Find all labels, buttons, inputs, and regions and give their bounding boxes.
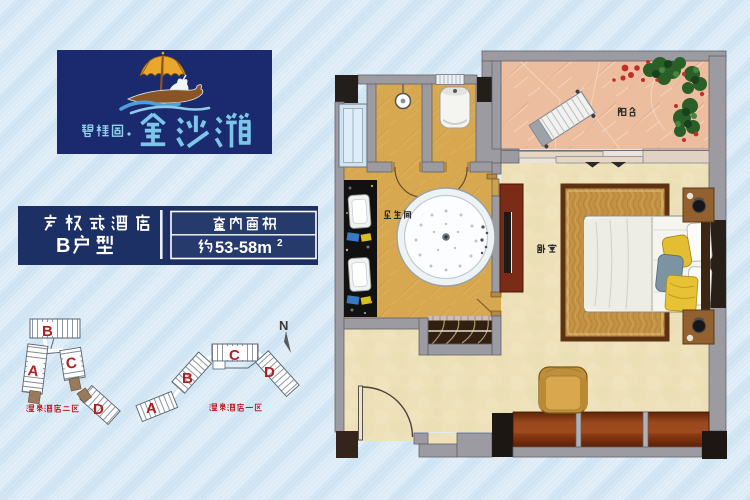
svg-text:N: N xyxy=(279,318,288,333)
svg-text:53-58m: 53-58m xyxy=(215,239,272,257)
svg-text:A: A xyxy=(146,400,157,417)
svg-text:A: A xyxy=(27,362,40,380)
svg-text:D: D xyxy=(93,401,104,418)
svg-text:B: B xyxy=(56,235,70,257)
svg-text:C: C xyxy=(229,347,240,364)
svg-text:2: 2 xyxy=(277,238,283,249)
svg-text:D: D xyxy=(264,364,275,381)
svg-text:B: B xyxy=(42,323,53,340)
svg-text:B: B xyxy=(182,370,193,387)
